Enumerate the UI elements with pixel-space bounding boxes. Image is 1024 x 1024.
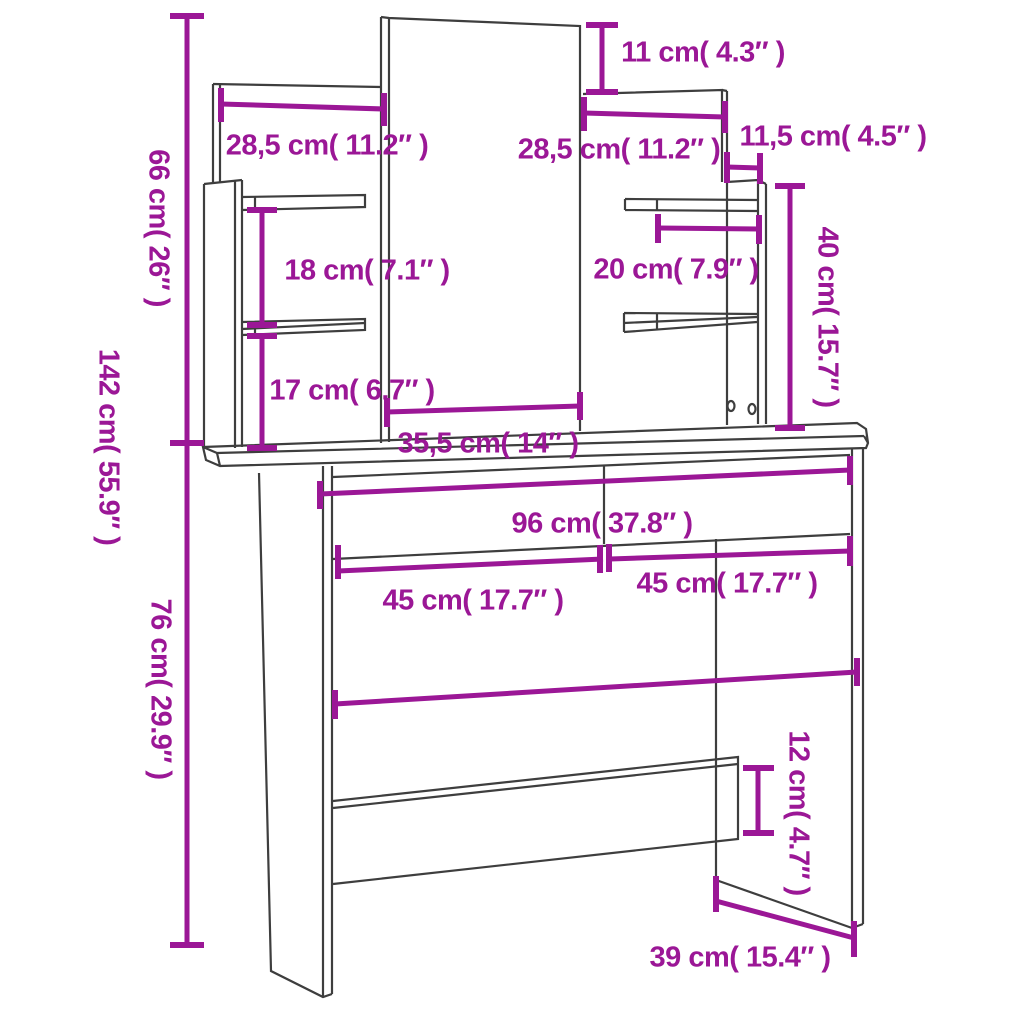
screw-holes [728, 401, 756, 414]
left-side-panel [259, 466, 332, 997]
dim-label-right-drawer: 45 cm( 17.7″ ) [637, 570, 818, 599]
dim-line-lower-width [335, 672, 857, 704]
left-post [204, 180, 242, 449]
dim-label-table-width: 96 cm( 37.8″ ) [512, 510, 693, 539]
dim-line-post-depth [727, 167, 760, 168]
dim-label-post-depth: 11,5 cm( 4.5″ ) [740, 123, 927, 152]
dim-label-right-post-height: 40 cm( 15.7″ ) [813, 227, 842, 408]
dim-line-left-back-panel [221, 104, 384, 109]
right-upper-shelf [625, 199, 757, 211]
dim-label-table-depth: 39 cm( 15.4″ ) [650, 944, 831, 973]
dim-line-right-drawer [610, 551, 850, 559]
dim-label-lower-shelf-spacing: 17 cm( 6.7″ ) [269, 377, 434, 406]
dim-label-left-drawer: 45 cm( 17.7″ ) [383, 587, 564, 616]
dim-line-left-drawer [338, 559, 603, 571]
dim-label-upper-unit-height: 66 cm( 26″ ) [144, 149, 173, 307]
dimension-diagram: 11 cm( 4.3″ ) 28,5 cm( 11.2″ ) 28,5 cm( … [0, 0, 1024, 1024]
dim-label-crossbar-height: 12 cm( 4.7″ ) [784, 730, 813, 895]
dim-label-left-shelf-spacing: 18 cm( 7.1″ ) [284, 257, 449, 286]
dim-line-mirror-width [387, 406, 580, 412]
dim-label-total-height: 142 cm( 55.9″ ) [94, 349, 123, 546]
dim-label-mirror-width: 35,5 cm( 14″ ) [398, 430, 579, 459]
dim-label-right-shelf: 20 cm( 7.9″ ) [593, 256, 758, 285]
dim-label-right-back-panel: 28,5 cm( 11.2″ ) [518, 136, 721, 165]
base-crossbar [333, 757, 738, 884]
dim-line-right-shelf [658, 228, 759, 229]
right-lower-shelf [624, 313, 757, 332]
dim-label-table-height: 76 cm( 29.9″ ) [146, 599, 175, 780]
dim-line-table-depth [716, 901, 854, 938]
dim-label-mirror-top: 11 cm( 4.3″ ) [621, 39, 785, 68]
dim-label-left-back-panel: 28,5 cm( 11.2″ ) [226, 132, 429, 161]
dim-line-right-back-panel [584, 113, 725, 117]
